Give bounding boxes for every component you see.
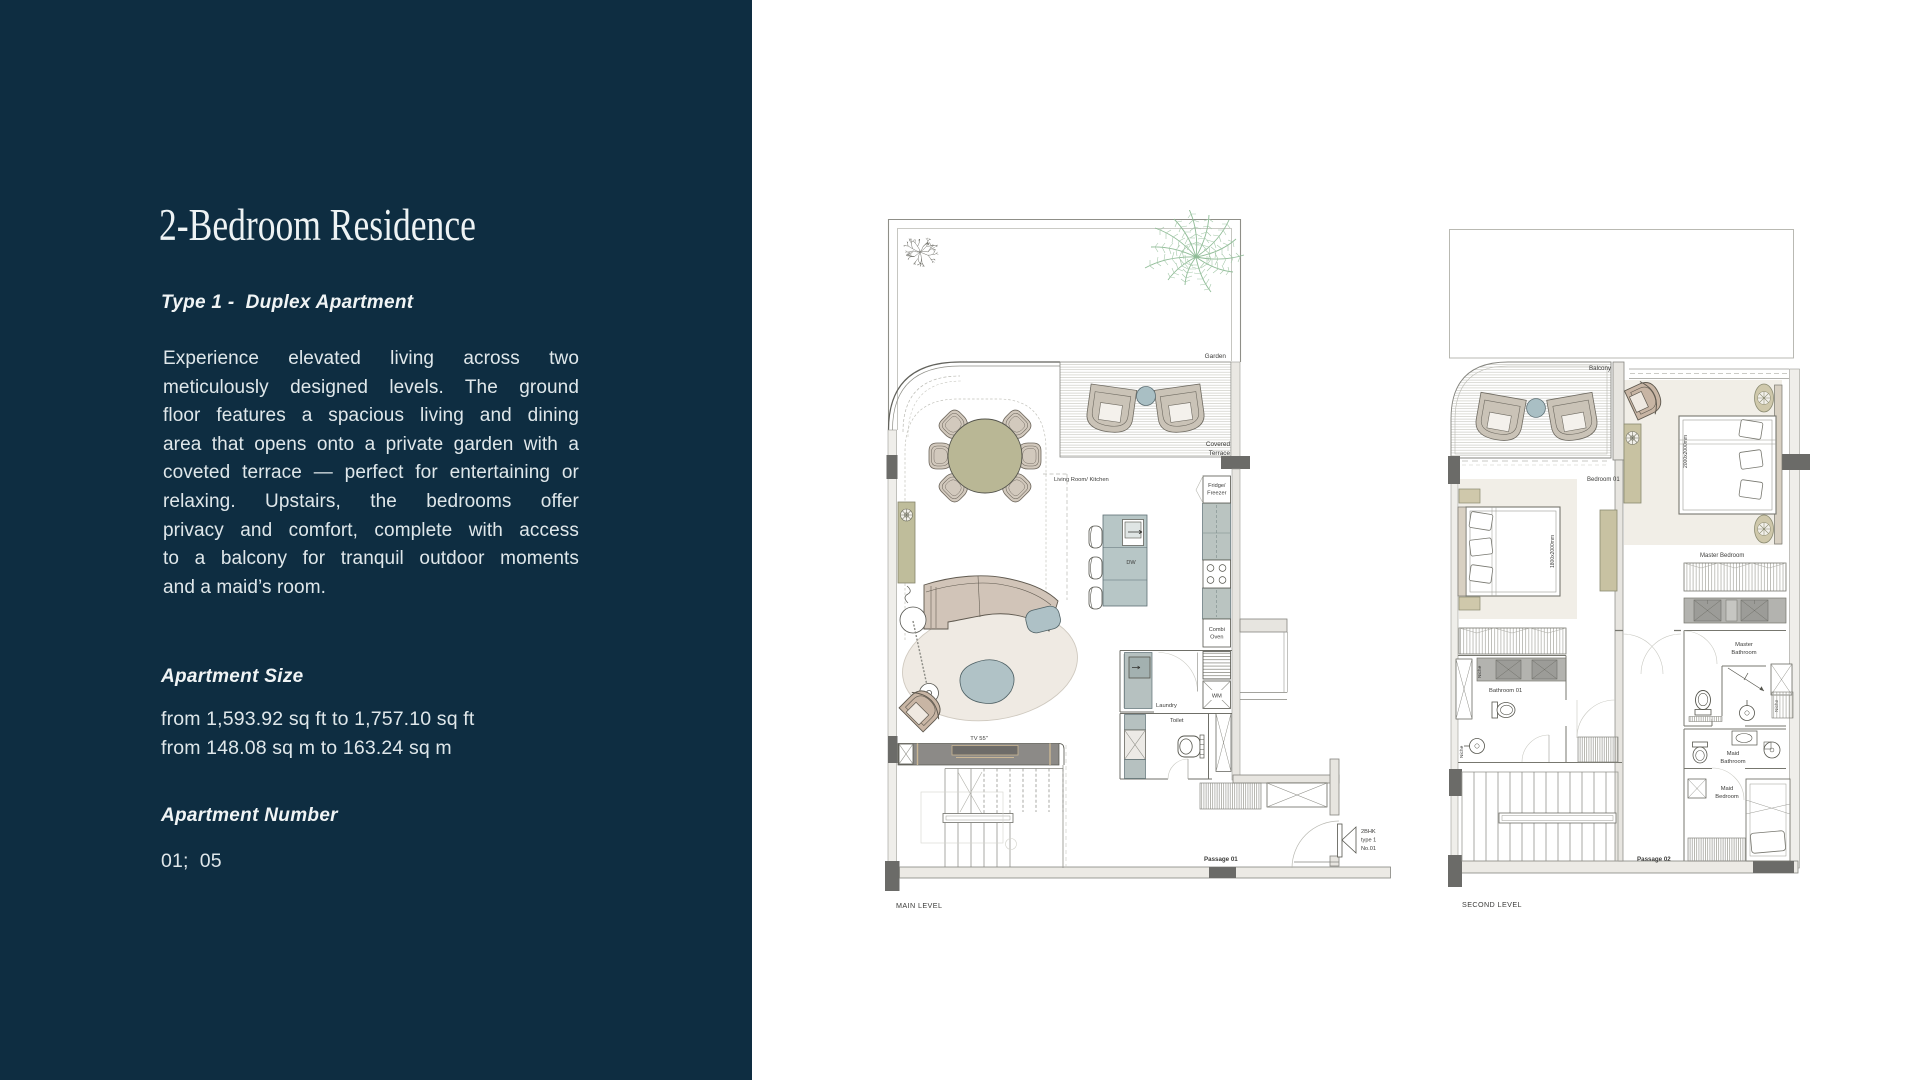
svg-text:Master: Master xyxy=(1735,642,1753,648)
svg-text:Niche: Niche xyxy=(1459,745,1465,758)
svg-text:Oven: Oven xyxy=(1210,635,1223,641)
svg-text:Toilet: Toilet xyxy=(1170,718,1184,724)
svg-text:Bathroom 01: Bathroom 01 xyxy=(1489,688,1522,694)
svg-text:type 1: type 1 xyxy=(1361,838,1376,844)
svg-text:MAIN LEVEL: MAIN LEVEL xyxy=(896,901,942,910)
svg-text:Laundry: Laundry xyxy=(1156,703,1177,709)
svg-text:Bedroom 01: Bedroom 01 xyxy=(1587,477,1620,483)
svg-text:Maid: Maid xyxy=(1721,786,1734,792)
svg-text:Passage 02: Passage 02 xyxy=(1637,856,1671,863)
svg-text:2BHK: 2BHK xyxy=(1361,829,1376,835)
svg-text:Garden: Garden xyxy=(1205,353,1227,360)
svg-text:Terrace: Terrace xyxy=(1209,450,1231,457)
svg-text:Combi: Combi xyxy=(1209,627,1225,633)
svg-text:No.01: No.01 xyxy=(1361,846,1376,852)
svg-text:Freezer: Freezer xyxy=(1207,491,1226,497)
svg-text:2000x2000mm: 2000x2000mm xyxy=(1683,435,1689,468)
svg-text:DW: DW xyxy=(1126,560,1136,566)
svg-text:Bedroom: Bedroom xyxy=(1715,794,1739,800)
svg-text:Bathroom: Bathroom xyxy=(1731,650,1756,656)
svg-text:Covered: Covered xyxy=(1206,441,1231,448)
svg-text:Bathroom: Bathroom xyxy=(1720,759,1745,765)
svg-text:1800x2000mm: 1800x2000mm xyxy=(1550,535,1556,568)
svg-text:TV 55": TV 55" xyxy=(970,736,988,742)
svg-text:Balcony: Balcony xyxy=(1589,365,1612,372)
svg-text:SECOND LEVEL: SECOND LEVEL xyxy=(1462,900,1522,909)
svg-text:Living Room/ Kitchen: Living Room/ Kitchen xyxy=(1054,477,1109,483)
svg-text:Niche: Niche xyxy=(1477,665,1483,678)
svg-text:Passage 01: Passage 01 xyxy=(1204,856,1238,863)
svg-text:Master Bedroom: Master Bedroom xyxy=(1700,553,1744,559)
svg-text:WM: WM xyxy=(1212,694,1222,700)
svg-text:Fridge/: Fridge/ xyxy=(1208,483,1226,489)
svg-text:Maid: Maid xyxy=(1727,751,1740,757)
